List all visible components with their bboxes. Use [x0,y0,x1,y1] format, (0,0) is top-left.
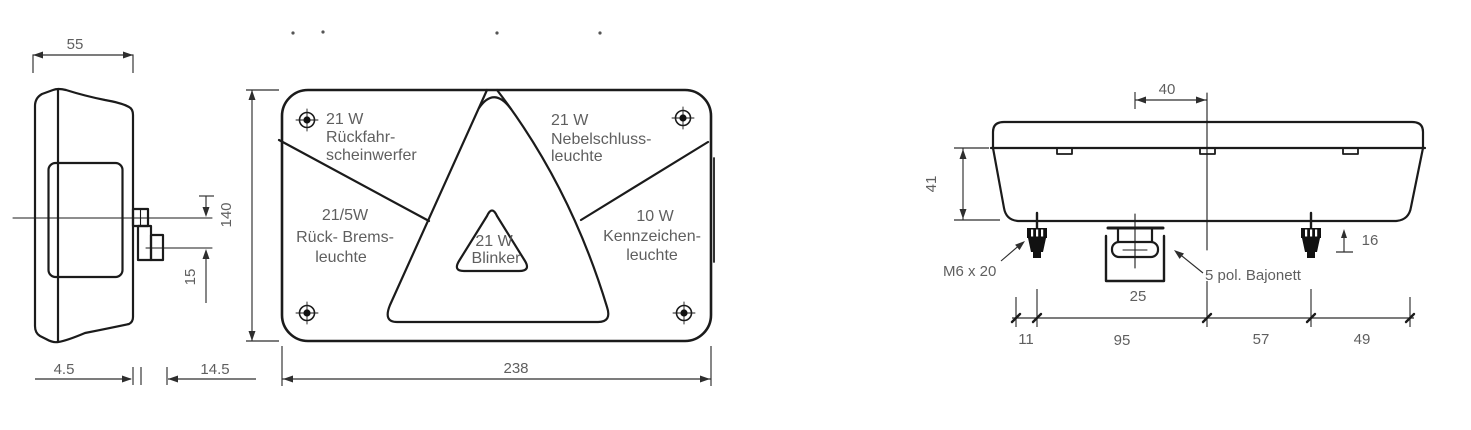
dim-55-value: 55 [67,36,84,53]
dim-16-value: 16 [1362,232,1379,249]
plate-lamp-name-2: leuchte [626,247,678,264]
bolt-callout-label: M6 x 20 [943,263,996,280]
label-tail-brake-lamp: 21/5W Rück- Brems- leuchte [296,207,394,266]
side-body [35,89,133,342]
dim-15: 15 [182,196,214,303]
dim-95-value: 95 [1114,332,1131,349]
dim-140: 140 [218,90,279,341]
tail-brake-name-2: leuchte [315,249,367,266]
dim-11-value: 11 [1018,331,1034,348]
mounting-bolt-left [1027,213,1047,258]
reverse-lamp-name-1: Rückfahr- [326,129,395,146]
reverse-lamp-wattage: 21 W [326,111,364,128]
dim-4-5-value: 4.5 [54,361,75,378]
connector-callout: 5 pol. Bajonett [1174,250,1302,284]
label-plate-lamp: 10 W Kennzeichen- leuchte [603,208,701,264]
screw-icon [672,107,694,129]
dim-238-value: 238 [503,360,528,377]
dim-40: 40 [1135,81,1207,109]
side-inner-lens [49,163,123,277]
dim-40-value: 40 [1159,81,1176,98]
side-connector [133,209,163,260]
bayonet-connector [1106,214,1164,281]
indicator-name: Blinker [472,250,522,267]
plate-lamp-wattage: 10 W [636,208,674,225]
screw-icon [673,302,695,324]
dim-4-5: 4.5 [35,361,141,385]
dim-25-value: 25 [1130,288,1147,305]
fog-lamp-name-2: leuchte [551,148,603,165]
dim-14-5-value: 14.5 [200,361,229,378]
dim-14-5: 14.5 [167,361,256,385]
dim-57-value: 57 [1253,331,1270,348]
dim-140-value: 140 [218,202,235,227]
front-view: 140 [218,90,714,386]
clip-tab [1057,148,1072,154]
fog-lamp-wattage: 21 W [551,112,589,129]
connector-callout-label: 5 pol. Bajonett [1205,267,1302,284]
indicator-wattage: 21 W [475,233,513,250]
tail-brake-name-1: Rück- Brems- [296,229,394,246]
label-fog-lamp: 21 W Nebelschluss- leuchte [551,112,651,165]
bolt-callout: M6 x 20 [943,241,1025,280]
dim-16: 16 [1336,229,1378,252]
dim-15-value: 15 [182,269,199,286]
plate-lamp-name-1: Kennzeichen- [603,228,701,245]
reverse-lamp-name-2: scheinwerfer [326,147,417,164]
label-indicator-lamp: 21 W Blinker [472,233,522,267]
lamp-drawing: 55 15 [0,0,1471,430]
mounting-bolt-right [1301,213,1321,258]
dim-49-value: 49 [1354,331,1371,348]
top-body [991,122,1425,221]
dim-41: 41 [923,148,1000,220]
tail-brake-wattage: 21/5W [322,207,369,224]
scan-specks [291,30,601,34]
technical-drawing-page: 55 15 [0,0,1471,430]
dim-chain-bottom: 11 95 57 49 [1012,281,1414,349]
dim-238: 238 [282,346,711,386]
top-view: 40 41 [923,81,1425,349]
screw-icon [296,109,318,131]
fog-lamp-name-1: Nebelschluss- [551,131,651,148]
dim-55: 55 [33,36,133,73]
clip-tab [1343,148,1358,154]
dim-41-value: 41 [923,176,940,193]
label-reverse-lamp: 21 W Rückfahr- scheinwerfer [326,111,417,164]
screw-icon [296,302,318,324]
